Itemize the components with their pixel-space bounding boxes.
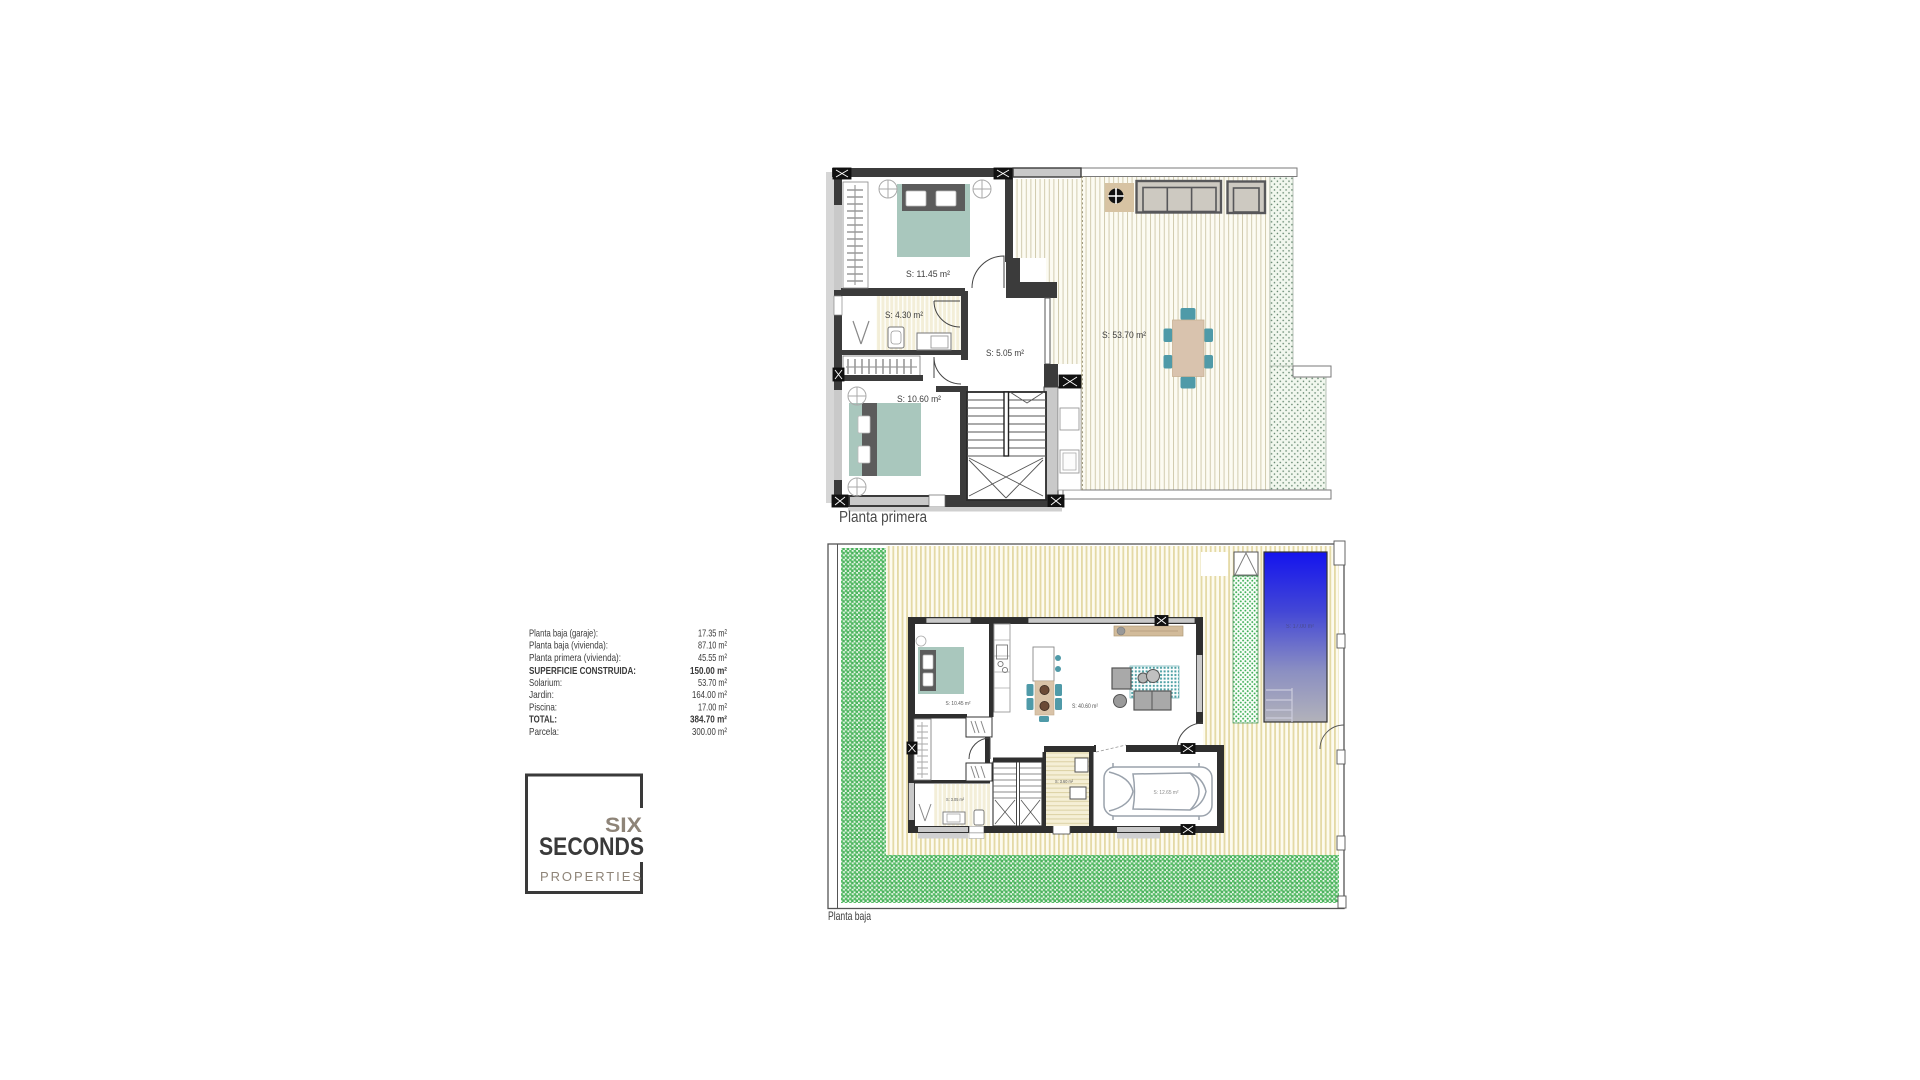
svg-text:TOTAL:: TOTAL: [529, 714, 557, 726]
svg-text:Jardin:: Jardin: [529, 689, 554, 701]
svg-text:150.00 m²: 150.00 m² [690, 665, 727, 677]
svg-text:Solarium:: Solarium: [529, 677, 562, 689]
svg-text:300.00 m²: 300.00 m² [692, 726, 727, 738]
svg-text:Planta primera (vivienda):: Planta primera (vivienda): [529, 652, 621, 664]
svg-text:87.10 m²: 87.10 m² [698, 640, 727, 652]
svg-text:SUPERFICIE CONSTRUIDA:: SUPERFICIE CONSTRUIDA: [529, 665, 636, 677]
svg-text:PROPERTIES: PROPERTIES [540, 869, 641, 884]
svg-text:SECONDS: SECONDS [539, 833, 644, 861]
svg-text:S: 11.45 m²: S: 11.45 m² [906, 269, 950, 280]
svg-text:Planta primera: Planta primera [839, 509, 927, 526]
svg-text:Piscina:: Piscina: [529, 701, 557, 713]
svg-text:Planta baja: Planta baja [828, 909, 871, 923]
svg-text:S: 3.60 m²: S: 3.60 m² [1055, 779, 1073, 784]
svg-text:Parcela:: Parcela: [529, 726, 559, 738]
svg-text:164.00 m²: 164.00 m² [692, 689, 727, 701]
svg-text:S: 3.05 m²: S: 3.05 m² [946, 797, 964, 802]
svg-text:Planta baja (garaje):: Planta baja (garaje): [529, 628, 598, 640]
svg-text:Planta baja (vivienda):: Planta baja (vivienda): [529, 640, 608, 652]
svg-text:45.55 m²: 45.55 m² [698, 652, 727, 664]
svg-text:53.70 m²: 53.70 m² [698, 677, 727, 689]
svg-text:S: 10.60 m²: S: 10.60 m² [897, 394, 941, 405]
svg-text:S: 10.45 m²: S: 10.45 m² [946, 701, 971, 707]
svg-text:17.00 m²: 17.00 m² [698, 701, 727, 713]
svg-text:S: 12.65 m²: S: 12.65 m² [1154, 790, 1179, 796]
svg-text:S: 5.05 m²: S: 5.05 m² [986, 348, 1024, 359]
svg-text:S: 4.30 m²: S: 4.30 m² [885, 310, 923, 321]
svg-text:S: 40.60 m²: S: 40.60 m² [1072, 704, 1098, 710]
svg-text:384.70 m²: 384.70 m² [690, 714, 727, 726]
svg-text:17.35 m²: 17.35 m² [698, 628, 727, 640]
svg-text:S: 53.70 m²: S: 53.70 m² [1102, 330, 1146, 341]
svg-text:S: 17.00 m²: S: 17.00 m² [1286, 624, 1314, 630]
